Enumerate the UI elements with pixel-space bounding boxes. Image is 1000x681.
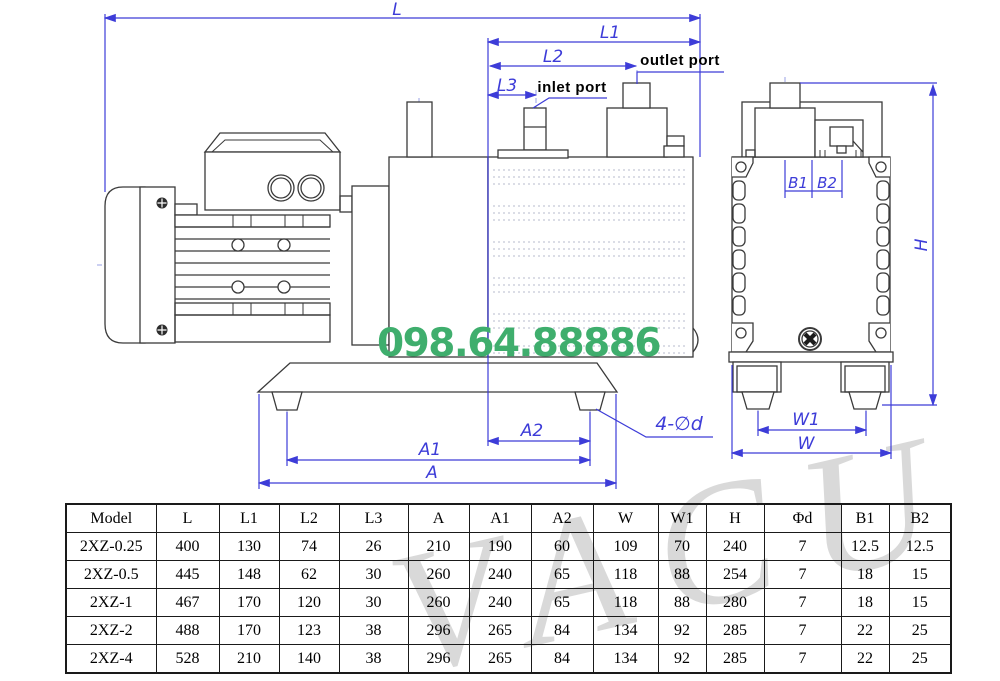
dim-label-L3: L3 <box>497 76 517 96</box>
end-view <box>729 83 893 409</box>
value-cell: 65 <box>531 561 593 589</box>
table-header-cell: B2 <box>889 504 951 533</box>
value-cell: 7 <box>764 617 841 645</box>
table-header-cell: Φd <box>764 504 841 533</box>
table-header-cell: B1 <box>841 504 889 533</box>
end-foot-right <box>849 392 881 409</box>
dim-label-L: L <box>392 0 401 20</box>
model-cell: 2XZ-4 <box>66 645 156 674</box>
value-cell: 38 <box>339 617 408 645</box>
gas-ballast-plate <box>407 102 432 157</box>
dim-label-B1: B1 <box>788 174 808 192</box>
value-cell: 12.5 <box>841 533 889 561</box>
page: VACU <box>0 0 1000 681</box>
table-row: 2XZ-146717012030260240651188828071815 <box>66 589 951 617</box>
value-cell: 134 <box>593 617 658 645</box>
dim-label-W: W <box>798 434 816 454</box>
dim-label-B2: B2 <box>817 174 837 192</box>
table-header-cell: W1 <box>658 504 706 533</box>
value-cell: 210 <box>408 533 469 561</box>
value-cell: 70 <box>658 533 706 561</box>
value-cell: 240 <box>469 561 531 589</box>
outlet-port-label: outlet port <box>640 52 720 69</box>
value-cell: 123 <box>279 617 339 645</box>
value-cell: 148 <box>219 561 279 589</box>
outlet-block <box>607 108 667 157</box>
value-cell: 296 <box>408 617 469 645</box>
value-cell: 254 <box>706 561 764 589</box>
value-cell: 25 <box>889 617 951 645</box>
value-cell: 280 <box>706 589 764 617</box>
value-cell: 74 <box>279 533 339 561</box>
table-header-cell: A1 <box>469 504 531 533</box>
value-cell: 92 <box>658 617 706 645</box>
value-cell: 84 <box>531 617 593 645</box>
value-cell: 62 <box>279 561 339 589</box>
value-cell: 265 <box>469 645 531 674</box>
value-cell: 7 <box>764 561 841 589</box>
value-cell: 285 <box>706 617 764 645</box>
model-cell: 2XZ-1 <box>66 589 156 617</box>
value-cell: 120 <box>279 589 339 617</box>
value-cell: 88 <box>658 589 706 617</box>
dim-label-A1: A1 <box>418 440 441 460</box>
motor-end-bell <box>105 187 145 343</box>
value-cell: 12.5 <box>889 533 951 561</box>
table-row: 2XZ-0.2540013074262101906010970240712.51… <box>66 533 951 561</box>
table-header-cell: A <box>408 504 469 533</box>
value-cell: 18 <box>841 589 889 617</box>
value-cell: 38 <box>339 645 408 674</box>
table-header-cell: A2 <box>531 504 593 533</box>
inlet-port-stem <box>524 108 546 150</box>
value-cell: 88 <box>658 561 706 589</box>
dim-label-foot-holes: 4-∅d <box>655 413 703 435</box>
table-row: 2XZ-0.54451486230260240651188825471815 <box>66 561 951 589</box>
value-cell: 130 <box>219 533 279 561</box>
value-cell: 7 <box>764 589 841 617</box>
table-header-cell: Model <box>66 504 156 533</box>
model-cell: 2XZ-0.5 <box>66 561 156 589</box>
motor-body <box>175 215 330 227</box>
end-outlet-box <box>755 108 815 157</box>
phone-watermark: 098.64.88886 <box>377 321 660 366</box>
value-cell: 7 <box>764 533 841 561</box>
value-cell: 528 <box>156 645 219 674</box>
value-cell: 18 <box>841 561 889 589</box>
value-cell: 260 <box>408 589 469 617</box>
value-cell: 134 <box>593 645 658 674</box>
value-cell: 170 <box>219 617 279 645</box>
end-foot-left <box>742 392 774 409</box>
value-cell: 15 <box>889 589 951 617</box>
table-header-cell: L2 <box>279 504 339 533</box>
table-header-cell: L1 <box>219 504 279 533</box>
value-cell: 30 <box>339 561 408 589</box>
value-cell: 92 <box>658 645 706 674</box>
value-cell: 15 <box>889 561 951 589</box>
end-valve <box>830 127 853 146</box>
dim-label-A2: A2 <box>520 421 543 441</box>
value-cell: 26 <box>339 533 408 561</box>
value-cell: 190 <box>469 533 531 561</box>
value-cell: 84 <box>531 645 593 674</box>
value-cell: 65 <box>531 589 593 617</box>
end-body <box>732 157 890 352</box>
value-cell: 285 <box>706 645 764 674</box>
value-cell: 210 <box>219 645 279 674</box>
dim-label-H: H <box>912 238 932 251</box>
value-cell: 240 <box>706 533 764 561</box>
value-cell: 140 <box>279 645 339 674</box>
value-cell: 445 <box>156 561 219 589</box>
dim-label-W1: W1 <box>792 410 820 430</box>
base-foot-right <box>575 392 605 410</box>
value-cell: 30 <box>339 589 408 617</box>
value-cell: 25 <box>889 645 951 674</box>
base-plate <box>258 363 617 392</box>
inlet-port-label: inlet port <box>537 79 606 96</box>
value-cell: 60 <box>531 533 593 561</box>
value-cell: 7 <box>764 645 841 674</box>
drain-plug <box>693 328 698 352</box>
value-cell: 400 <box>156 533 219 561</box>
table-header-cell: L3 <box>339 504 408 533</box>
dim-label-L2: L2 <box>543 47 563 67</box>
table-row: 2XZ-248817012338296265841349228572225 <box>66 617 951 645</box>
table-header-row: ModelLL1L2L3AA1A2WW1HΦdB1B2 <box>66 504 951 533</box>
value-cell: 488 <box>156 617 219 645</box>
value-cell: 260 <box>408 561 469 589</box>
outlet-port-cap <box>623 83 650 108</box>
table-header-cell: H <box>706 504 764 533</box>
value-cell: 109 <box>593 533 658 561</box>
terminal-box-lid <box>205 133 340 152</box>
table-header-cell: W <box>593 504 658 533</box>
value-cell: 170 <box>219 589 279 617</box>
value-cell: 467 <box>156 589 219 617</box>
base-foot-left <box>272 392 302 410</box>
model-cell: 2XZ-0.25 <box>66 533 156 561</box>
value-cell: 22 <box>841 617 889 645</box>
table-header-cell: L <box>156 504 219 533</box>
value-cell: 22 <box>841 645 889 674</box>
value-cell: 118 <box>593 589 658 617</box>
value-cell: 118 <box>593 561 658 589</box>
end-outlet-port <box>770 83 800 108</box>
dim-label-L1: L1 <box>600 23 620 43</box>
table-row: 2XZ-452821014038296265841349228572225 <box>66 645 951 674</box>
value-cell: 240 <box>469 589 531 617</box>
value-cell: 265 <box>469 617 531 645</box>
dim-label-A: A <box>425 463 438 483</box>
value-cell: 296 <box>408 645 469 674</box>
motor-bearing-cap <box>140 187 175 343</box>
model-cell: 2XZ-2 <box>66 617 156 645</box>
oil-cap-right <box>298 175 324 201</box>
dimension-table: ModelLL1L2L3AA1A2WW1HΦdB1B2 2XZ-0.254001… <box>65 503 952 674</box>
oil-cap-left <box>268 175 294 201</box>
inlet-flange <box>498 150 568 158</box>
